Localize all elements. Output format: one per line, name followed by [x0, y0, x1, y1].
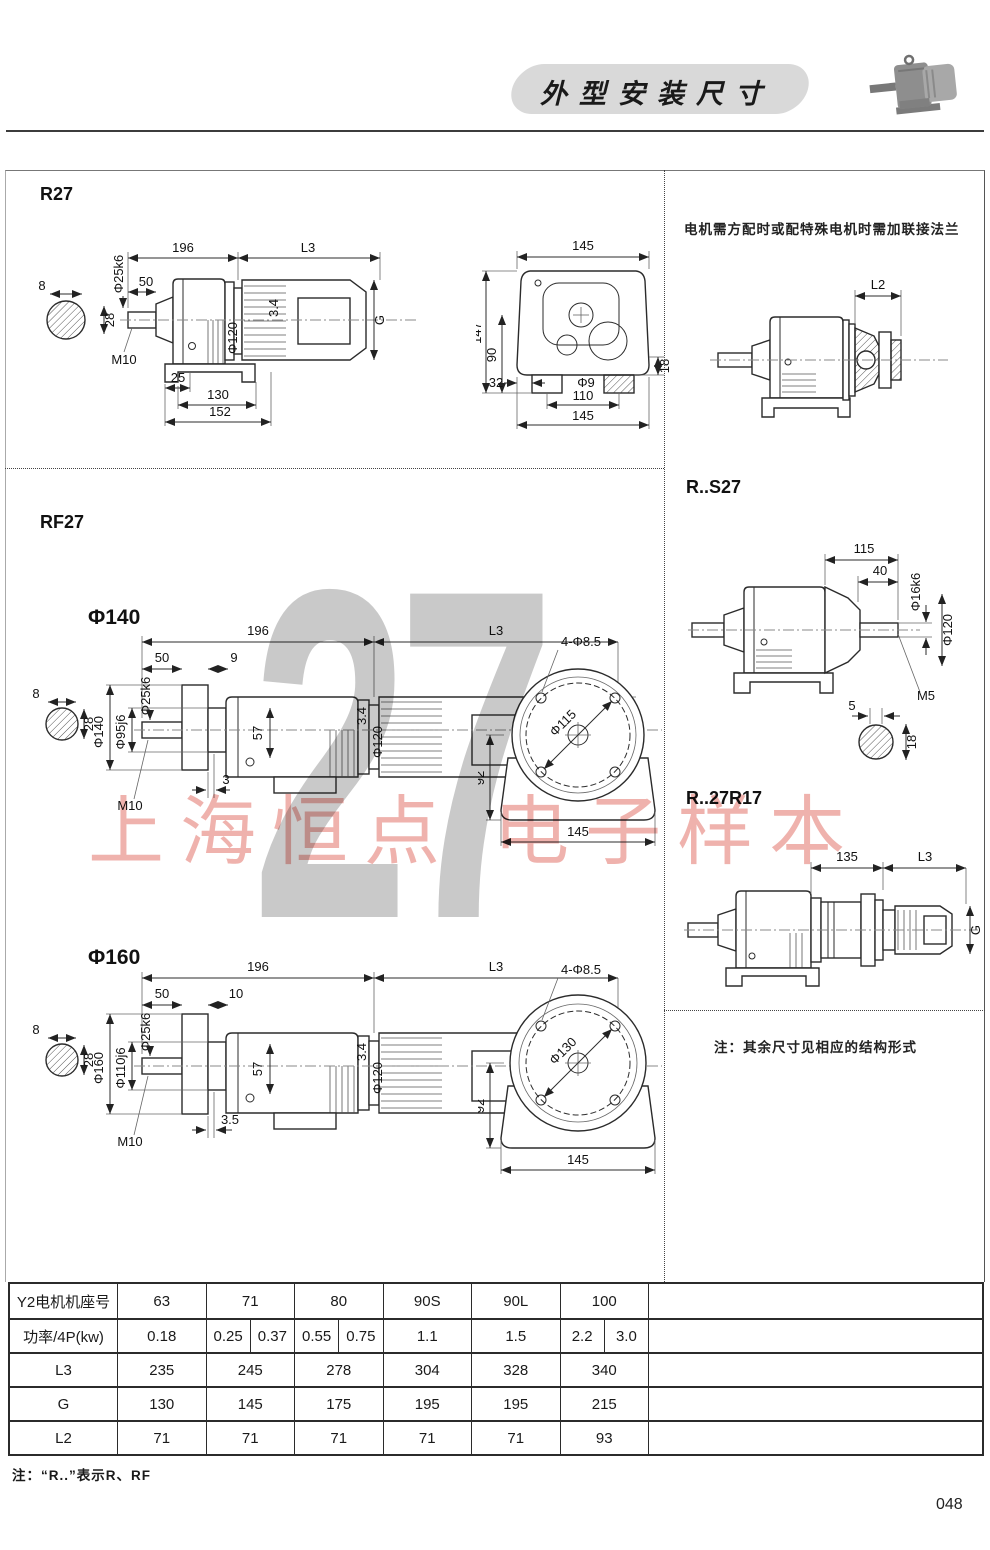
dim-label: 130 — [207, 387, 229, 402]
l2-dimensions: L2 — [855, 277, 901, 336]
dim-label: 40 — [873, 563, 887, 578]
dim-label: 92 — [478, 1099, 487, 1113]
page-number: 048 — [936, 1496, 963, 1514]
dim-label: Φ110j6 — [113, 1047, 128, 1088]
footer-note: 注：“R..”表示R、RF — [12, 1464, 151, 1484]
table-cell: 340 — [560, 1354, 649, 1386]
table-cell: 71 — [117, 1422, 206, 1454]
table-cell: 90S — [383, 1284, 472, 1318]
f160-shaft-section: 8 28 — [32, 1022, 96, 1076]
f160-flange-outline — [501, 995, 655, 1148]
dim-label: 4-Φ8.5 — [561, 634, 601, 649]
dim-label: 152 — [209, 404, 231, 419]
dim-label: M10 — [117, 1134, 142, 1149]
dim-label: 50 — [139, 274, 153, 289]
dim-label: 3.4 — [354, 707, 369, 725]
other-dims-note: 注：其余尺寸见相应的结构形式 — [714, 1036, 917, 1056]
section-title-r27: R27 — [40, 184, 73, 205]
dim-label: 50 — [155, 650, 169, 665]
page-title: 外型安装尺寸 — [540, 72, 790, 111]
table-cell: 71 — [206, 1422, 295, 1454]
table-cell: 1.1 — [383, 1320, 472, 1352]
table-cell-split: 0.55 0.75 — [294, 1320, 383, 1352]
table-cell-split: 2.2 3.0 — [560, 1320, 649, 1352]
r17-outline — [688, 891, 952, 986]
table-cell: 71 — [383, 1422, 472, 1454]
table-cell: 215 — [560, 1388, 649, 1420]
dim-label: 145 — [572, 238, 594, 253]
row-label: 功率/4P(kw) — [10, 1320, 117, 1352]
dim-label: 147 — [476, 322, 484, 344]
f140-flange-outline — [501, 669, 655, 820]
dim-label: Φ120 — [370, 726, 385, 758]
table-subcell: 0.55 — [295, 1320, 338, 1352]
dim-label: M5 — [917, 688, 935, 703]
dim-label: M10 — [111, 352, 136, 367]
row-label: L2 — [10, 1422, 117, 1454]
dim-label: 90 — [484, 348, 499, 362]
table-subcell: 0.37 — [250, 1320, 294, 1352]
table-cell: 245 — [206, 1354, 295, 1386]
section-title-rf27: RF27 — [40, 512, 84, 533]
flange-note: 电机需方配时或配特殊电机时需加联接法兰 — [684, 218, 960, 238]
dim-label: 3 — [222, 772, 229, 787]
dim-label: 28 — [102, 313, 117, 327]
table-cell: 304 — [383, 1354, 472, 1386]
dim-label: L2 — [871, 277, 885, 292]
table-cell: 71 — [294, 1422, 383, 1454]
r27-side-drawing: 8 28 — [28, 222, 488, 467]
header-divider — [6, 130, 984, 132]
dim-label: G — [372, 315, 387, 325]
dim-label: Φ25k6 — [138, 1013, 153, 1052]
dim-label: 135 — [836, 849, 858, 864]
dim-label: 8 — [32, 1022, 39, 1037]
table-cell: 1.5 — [471, 1320, 560, 1352]
dim-label: Φ140 — [91, 716, 106, 748]
f140-shaft-section: 8 28 — [32, 686, 96, 740]
rf27-140-flange-drawing: 4-Φ8.5 Φ115 92 145 — [478, 630, 678, 870]
dim-label: 5 — [848, 698, 855, 713]
dim-label: Φ16k6 — [908, 573, 923, 612]
dim-label: 145 — [567, 1152, 589, 1167]
r27-shaft-section: 8 28 — [38, 278, 117, 339]
dim-label: 25 — [171, 370, 185, 385]
dim-label: Φ25k6 — [111, 255, 126, 294]
table-subcell: 0.75 — [338, 1320, 382, 1352]
table-subcell: 2.2 — [561, 1320, 604, 1352]
table-cell-empty — [648, 1388, 982, 1420]
table-cell-empty — [648, 1284, 982, 1318]
rs27-outline — [692, 587, 898, 693]
dim-label: 4-Φ8.5 — [561, 962, 601, 977]
dim-label: 196 — [247, 623, 269, 638]
table-subcell: 0.25 — [207, 1320, 250, 1352]
row-label: Y2电机机座号 — [10, 1284, 117, 1318]
r27-outline — [128, 279, 366, 382]
section-title-rs27: R..S27 — [686, 477, 741, 498]
row-label: L3 — [10, 1354, 117, 1386]
dim-label: 3.4 — [354, 1043, 369, 1061]
dim-label: 3.4 — [266, 299, 281, 317]
rs27-drawing: 115 40 Φ16k6 Φ120 M5 5 18 — [680, 510, 980, 810]
dim-label: 8 — [32, 686, 39, 701]
table-cell: 80 — [294, 1284, 383, 1318]
row-label: G — [10, 1388, 117, 1420]
r27-end-drawing: 145 147 90 18 32 Φ9 110 145 — [476, 233, 680, 445]
catalog-page: 外型安装尺寸 R27 RF27 Φ140 Φ160 R..S27 R..27R1… — [0, 0, 990, 1550]
table-cell-empty — [648, 1422, 982, 1454]
dim-label: L3 — [301, 240, 315, 255]
l2-outline — [718, 317, 901, 417]
table-cell: 175 — [294, 1388, 383, 1420]
l2-flange-drawing: L2 — [698, 262, 963, 447]
dim-label: Φ95j6 — [113, 715, 128, 750]
horizontal-dotted-divider-left — [5, 468, 664, 469]
dim-label: 57 — [250, 726, 265, 740]
table-cell: 195 — [383, 1388, 472, 1420]
table-row: Y2电机机座号 63 71 80 90S 90L 100 — [10, 1284, 982, 1318]
dimension-table: Y2电机机座号 63 71 80 90S 90L 100 功率/4P(kw) 0… — [8, 1282, 984, 1456]
dim-label: 9 — [230, 650, 237, 665]
table-row: 功率/4P(kw) 0.18 0.25 0.37 0.55 0.75 1.1 1… — [10, 1318, 982, 1352]
dim-label: Φ120 — [940, 614, 955, 646]
dim-label: 110 — [573, 388, 594, 403]
table-cell: 71 — [206, 1284, 295, 1318]
dim-label: 32 — [489, 375, 503, 390]
dim-label: Φ120 — [225, 322, 240, 354]
dim-label: Φ120 — [370, 1062, 385, 1094]
dim-label: 196 — [247, 959, 269, 974]
dim-label: Φ25k6 — [138, 677, 153, 716]
dim-label: L3 — [918, 849, 932, 864]
table-cell: 0.18 — [117, 1320, 206, 1352]
table-cell: 278 — [294, 1354, 383, 1386]
dim-label: 18 — [904, 735, 919, 749]
dim-label: Φ160 — [91, 1052, 106, 1084]
gearmotor-photo — [858, 50, 966, 124]
table-subcell: 3.0 — [604, 1320, 648, 1352]
dim-label: 3.5 — [221, 1112, 239, 1127]
table-cell: 130 — [117, 1388, 206, 1420]
table-cell: 145 — [206, 1388, 295, 1420]
dim-label: 92 — [478, 771, 487, 785]
table-row: L2 71 71 71 71 71 93 — [10, 1420, 982, 1454]
table-cell: 63 — [117, 1284, 206, 1318]
table-cell: 93 — [560, 1422, 649, 1454]
table-cell: 71 — [471, 1422, 560, 1454]
table-cell-split: 0.25 0.37 — [206, 1320, 295, 1352]
dim-label: 145 — [567, 824, 589, 839]
dim-label: G — [968, 925, 983, 935]
dim-label: 196 — [172, 240, 194, 255]
dim-label: 18 — [657, 359, 672, 373]
dim-label: 115 — [854, 541, 875, 556]
table-cell: 195 — [471, 1388, 560, 1420]
table-cell-empty — [648, 1320, 982, 1352]
table-cell: 235 — [117, 1354, 206, 1386]
rf27-160-flange-drawing: 4-Φ8.5 Φ130 92 145 — [478, 958, 678, 1198]
r27r17-drawing: 135 L3 G — [678, 838, 988, 1013]
table-cell: 328 — [471, 1354, 560, 1386]
dim-label: M10 — [117, 798, 142, 813]
table-cell: 90L — [471, 1284, 560, 1318]
dim-label: 50 — [155, 986, 169, 1001]
gearmotor-shape — [867, 51, 958, 117]
table-cell: 100 — [560, 1284, 649, 1318]
dim-label: 8 — [38, 278, 45, 293]
table-row: L3 235 245 278 304 328 340 — [10, 1352, 982, 1386]
dim-label: 145 — [572, 408, 594, 423]
dim-label: 57 — [250, 1062, 265, 1076]
table-cell-empty — [648, 1354, 982, 1386]
table-row: G 130 145 175 195 195 215 — [10, 1386, 982, 1420]
dim-label: 10 — [229, 986, 243, 1001]
